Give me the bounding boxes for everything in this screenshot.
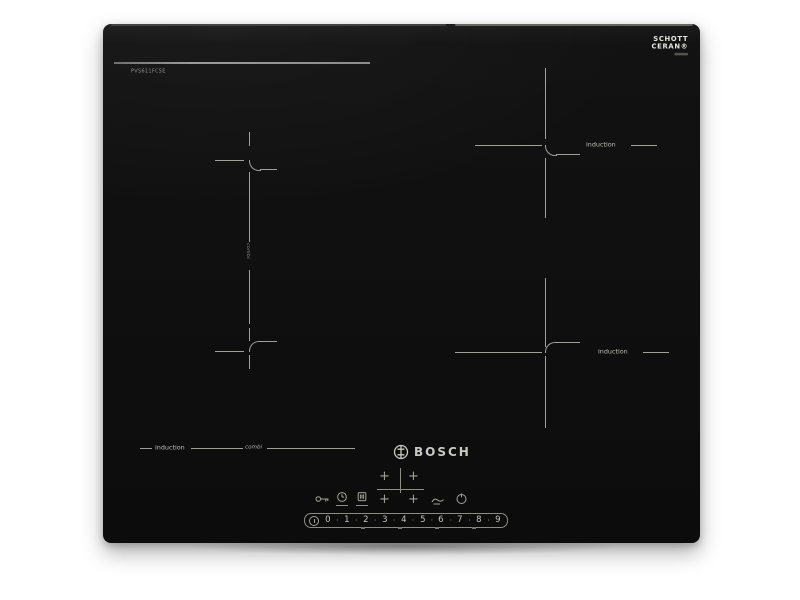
left-zone-top-right-arm [260, 169, 277, 170]
frying-sensor-touch-underline [356, 505, 368, 506]
zone-select-front-right-key: + [408, 471, 419, 483]
strip-tick [361, 527, 365, 529]
level-dot: · [431, 517, 434, 525]
level-3: 3 [382, 516, 387, 525]
right-top-zone-down-arm [545, 158, 546, 218]
level-dot: · [412, 517, 415, 525]
right-bottom-zone-down-arm [545, 356, 546, 428]
glass-brand-mark: SCHOTT CERAN® [651, 35, 688, 56]
right-top-zone-right-arm [556, 154, 580, 155]
zone-map-horizontal-divider [377, 489, 424, 490]
left-zone-top-dash [249, 132, 250, 146]
zone-select-front-left-key: + [379, 471, 390, 483]
glass-brand-submark [674, 53, 688, 56]
level-dot: · [449, 517, 452, 525]
level-5: 5 [420, 516, 425, 525]
right-top-zone-up-arm [545, 68, 546, 139]
right-bottom-zone-right-arm [556, 342, 580, 343]
front-script-label: combi [245, 444, 262, 450]
zone-select-rear-right-key: + [408, 494, 419, 506]
bosch-logo: BOSCH [393, 444, 471, 460]
level-2: 2 [363, 516, 368, 525]
left-zone-bottom-corner-arc [249, 341, 261, 352]
level-4: 4 [401, 516, 406, 525]
front-left-induction-label: induction [155, 445, 185, 451]
level-1: 1 [344, 516, 349, 525]
power-on-off-icon [455, 492, 468, 505]
right-bottom-zone-label: induction [598, 349, 628, 355]
front-left-line-1 [191, 448, 243, 449]
induction-hob-glass: PVS611FC5E SCHOTT CERAN® combi induction [103, 24, 700, 543]
right-top-zone-trailing-line [631, 145, 657, 146]
level-0: 0 [325, 516, 330, 525]
top-edge-highlight-right [455, 24, 693, 26]
level-7: 7 [457, 516, 462, 525]
level-dot: · [336, 517, 339, 525]
level-dot: · [468, 517, 471, 525]
right-bottom-zone-left-arm [455, 352, 542, 353]
left-zone-top-left-arm [215, 160, 244, 161]
front-left-line-2 [267, 448, 355, 449]
level-9: 9 [495, 516, 500, 525]
zone-select-rear-left-key: + [379, 494, 390, 506]
level-dot: · [487, 517, 490, 525]
level-dot: · [355, 517, 358, 525]
product-photo: PVS611FC5E SCHOTT CERAN® combi induction [0, 0, 800, 600]
level-6: 6 [439, 516, 444, 525]
child-lock-key-icon [315, 494, 331, 504]
glass-brand-line1: SCHOTT [651, 35, 688, 43]
left-zone-bottom-right-arm [260, 341, 277, 342]
right-top-zone-label: induction [586, 142, 616, 148]
model-number: PVS611FC5E [131, 69, 166, 74]
left-zone-bridge-line-lower [249, 270, 250, 324]
left-zone-mid-dash [249, 328, 250, 341]
bridge-zone-label: combi [246, 243, 250, 259]
wipe-protection-icon [430, 496, 446, 506]
power-level-numbers: 0 · 1 · 2 · 3 · 4 · 5 · 6 · 7 · 8 · 9 [305, 514, 507, 527]
bosch-wordmark: BOSCH [414, 444, 471, 460]
frying-sensor-pan-icon [356, 491, 368, 503]
right-bottom-zone-corner-arc [545, 342, 557, 353]
left-zone-bottom-dash [249, 355, 250, 369]
level-dot: · [374, 517, 377, 525]
level-8: 8 [476, 516, 481, 525]
top-edge-highlight-left [111, 24, 446, 26]
decorative-header-line [114, 62, 370, 64]
level-dot: · [393, 517, 396, 525]
right-bottom-zone-trailing-line [643, 352, 669, 353]
front-left-dash [140, 448, 152, 449]
right-top-zone-left-arm [475, 145, 542, 146]
timer-touch-underline [336, 505, 348, 506]
timer-clock-icon [336, 491, 348, 503]
strip-tick [435, 527, 439, 529]
strip-tick [472, 527, 476, 529]
glass-brand-line2: CERAN® [651, 43, 688, 51]
right-bottom-zone-up-arm [545, 278, 546, 347]
left-zone-bottom-left-arm [215, 351, 244, 352]
strip-tick [398, 527, 402, 529]
power-level-strip: 0 · 1 · 2 · 3 · 4 · 5 · 6 · 7 · 8 · 9 [304, 513, 508, 528]
left-zone-bridge-line-upper [249, 172, 250, 242]
bosch-armature-icon [393, 444, 409, 460]
